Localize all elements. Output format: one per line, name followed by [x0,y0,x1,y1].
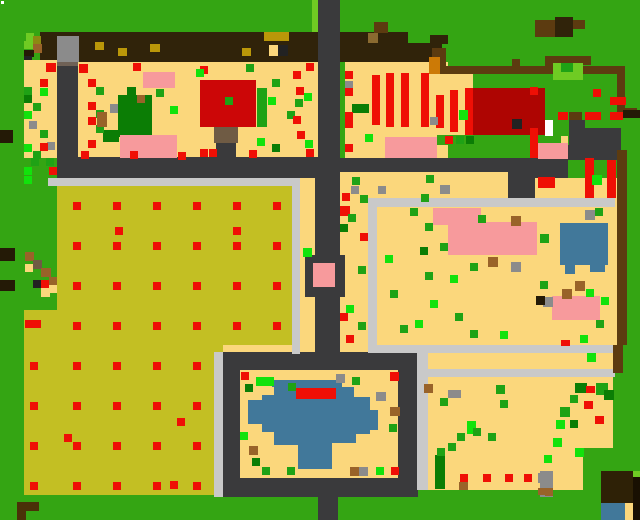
game-map-viewport [0,0,640,520]
map-canvas[interactable] [0,0,640,520]
